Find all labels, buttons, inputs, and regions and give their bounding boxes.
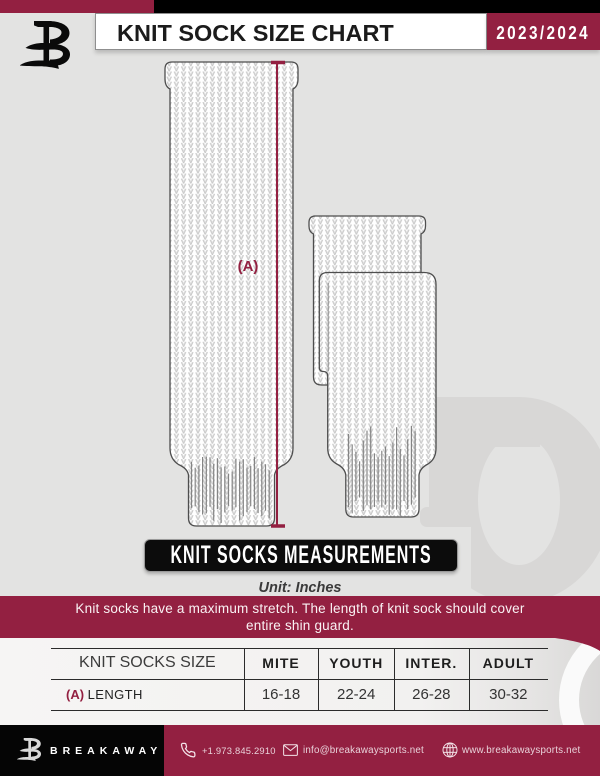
svg-text:(A): (A) xyxy=(238,258,259,275)
